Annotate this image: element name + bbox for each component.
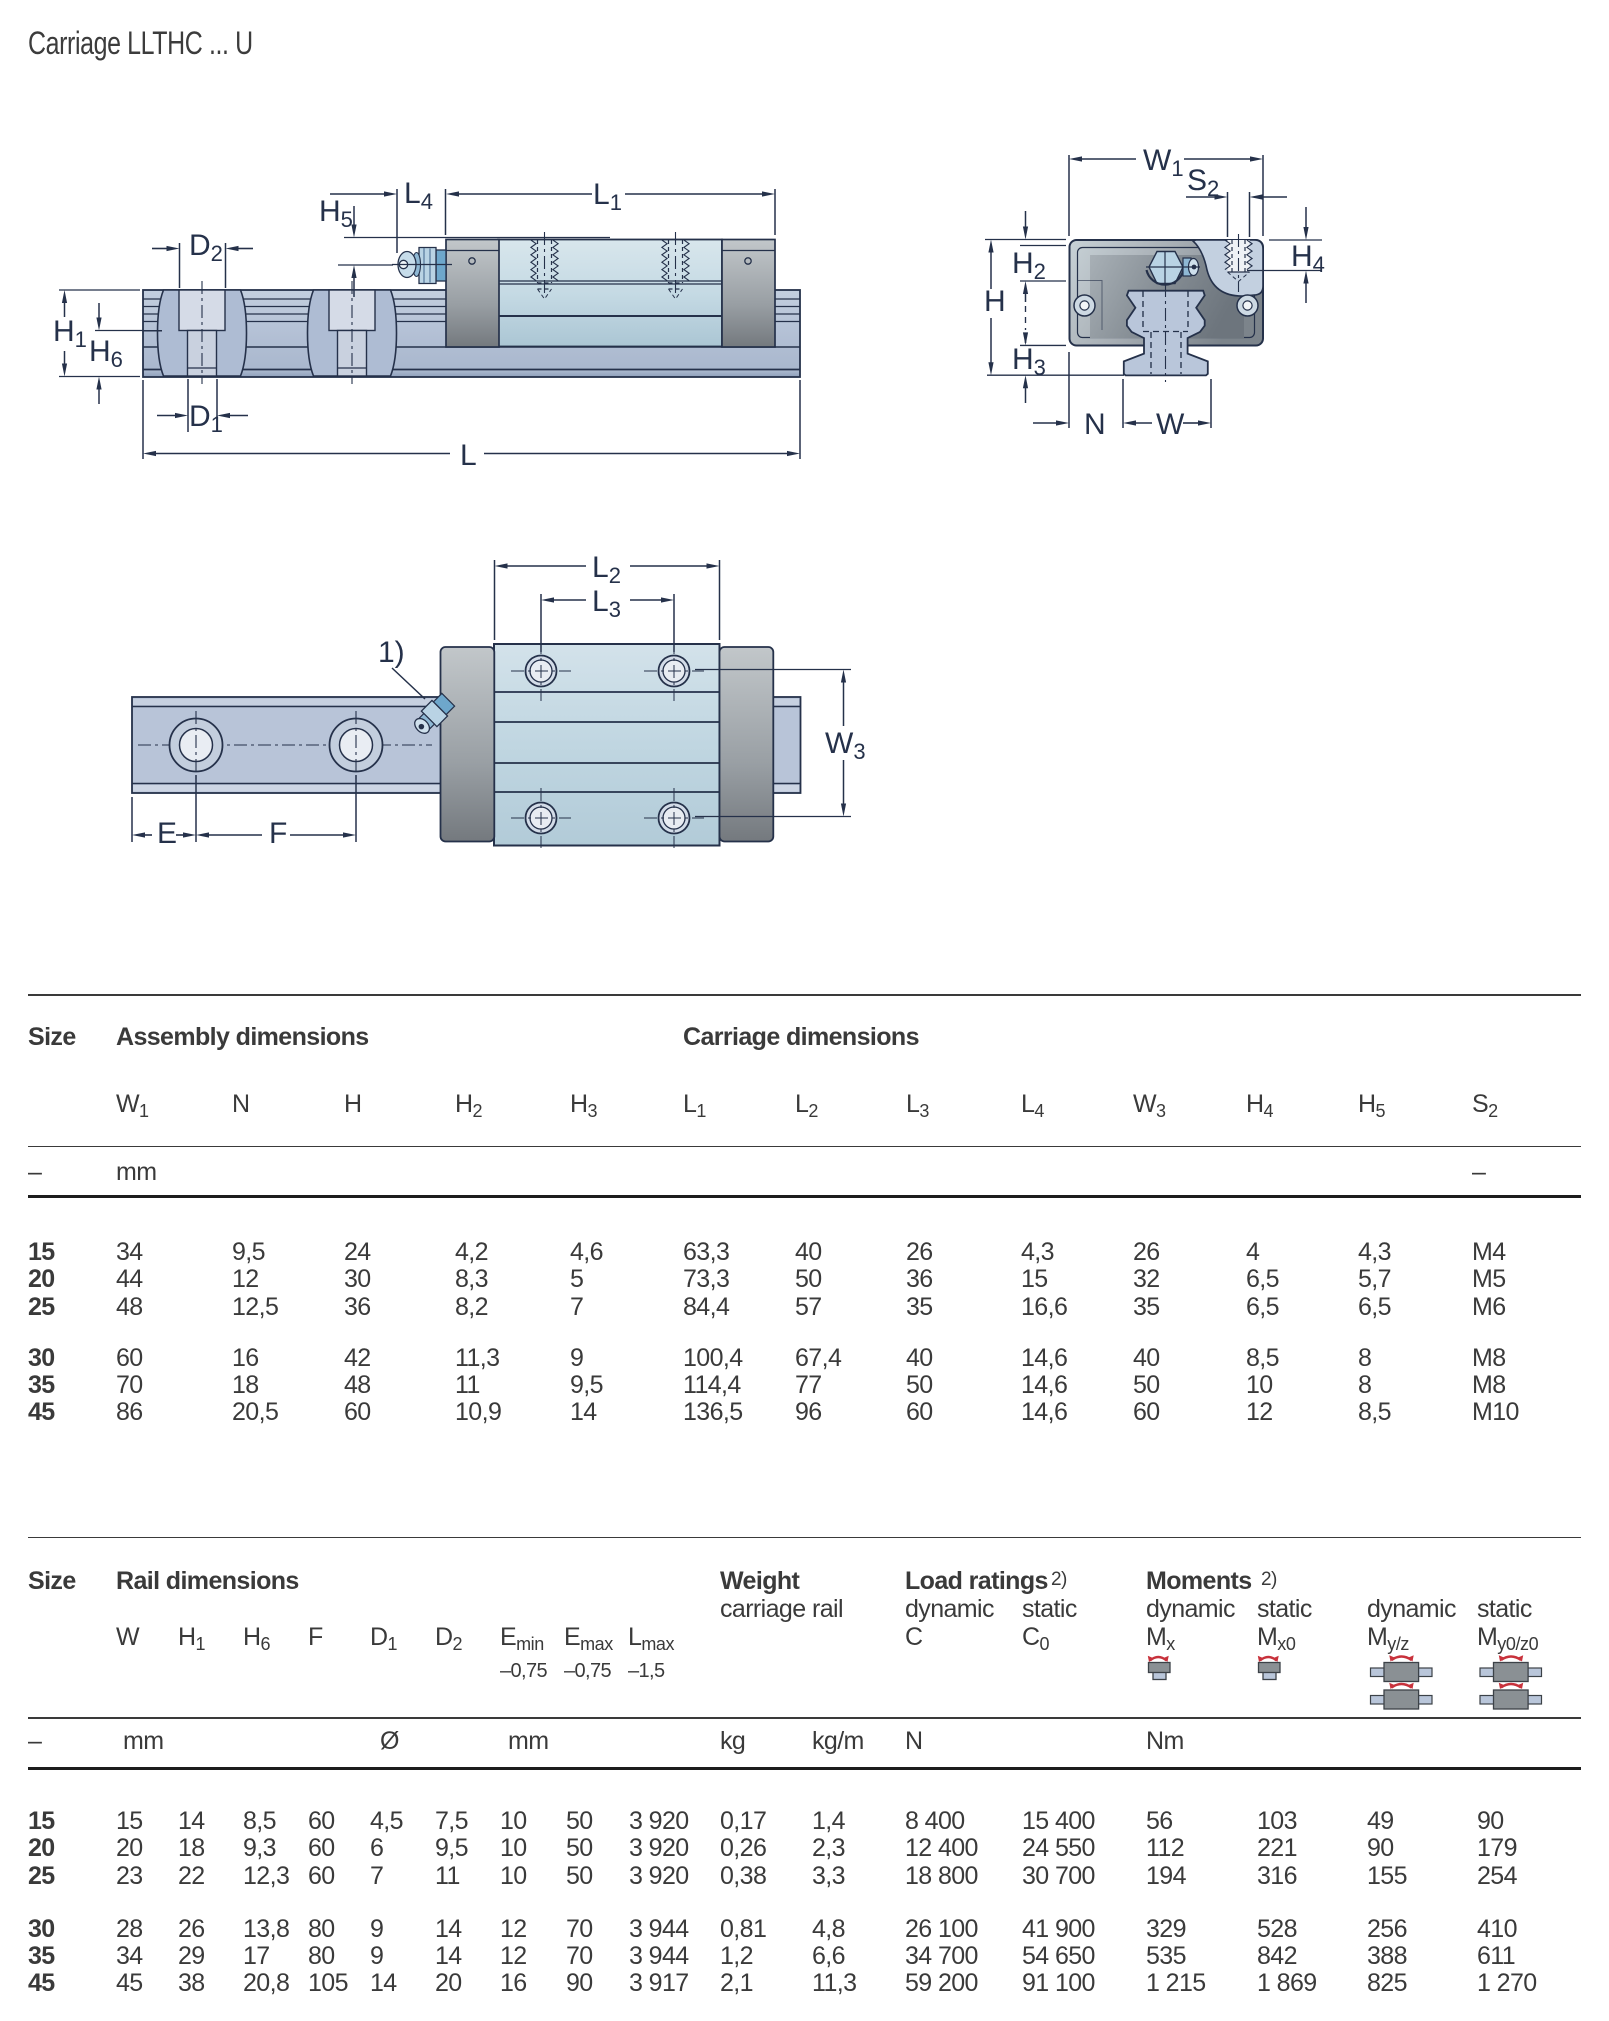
svg-text:1): 1): [378, 636, 405, 669]
svg-text:D1: D1: [189, 400, 223, 437]
svg-text:W: W: [1156, 408, 1185, 441]
svg-text:W1: W1: [1143, 144, 1184, 181]
svg-text:H: H: [984, 285, 1006, 318]
svg-text:H4: H4: [1291, 240, 1325, 277]
svg-text:N: N: [1084, 408, 1106, 441]
svg-text:H6: H6: [89, 335, 123, 372]
svg-text:E: E: [157, 817, 177, 850]
svg-text:L: L: [460, 439, 477, 472]
svg-text:D2: D2: [189, 229, 223, 266]
svg-text:H1: H1: [53, 315, 87, 352]
svg-text:L4: L4: [404, 177, 433, 214]
svg-text:W3: W3: [825, 727, 866, 764]
svg-text:L2: L2: [592, 551, 621, 588]
svg-text:L1: L1: [593, 178, 622, 215]
svg-text:H2: H2: [1012, 247, 1046, 284]
svg-text:L3: L3: [592, 585, 621, 622]
svg-text:F: F: [269, 817, 287, 850]
svg-text:H5: H5: [319, 195, 353, 232]
svg-text:S2: S2: [1187, 164, 1219, 201]
svg-text:H3: H3: [1012, 343, 1046, 380]
